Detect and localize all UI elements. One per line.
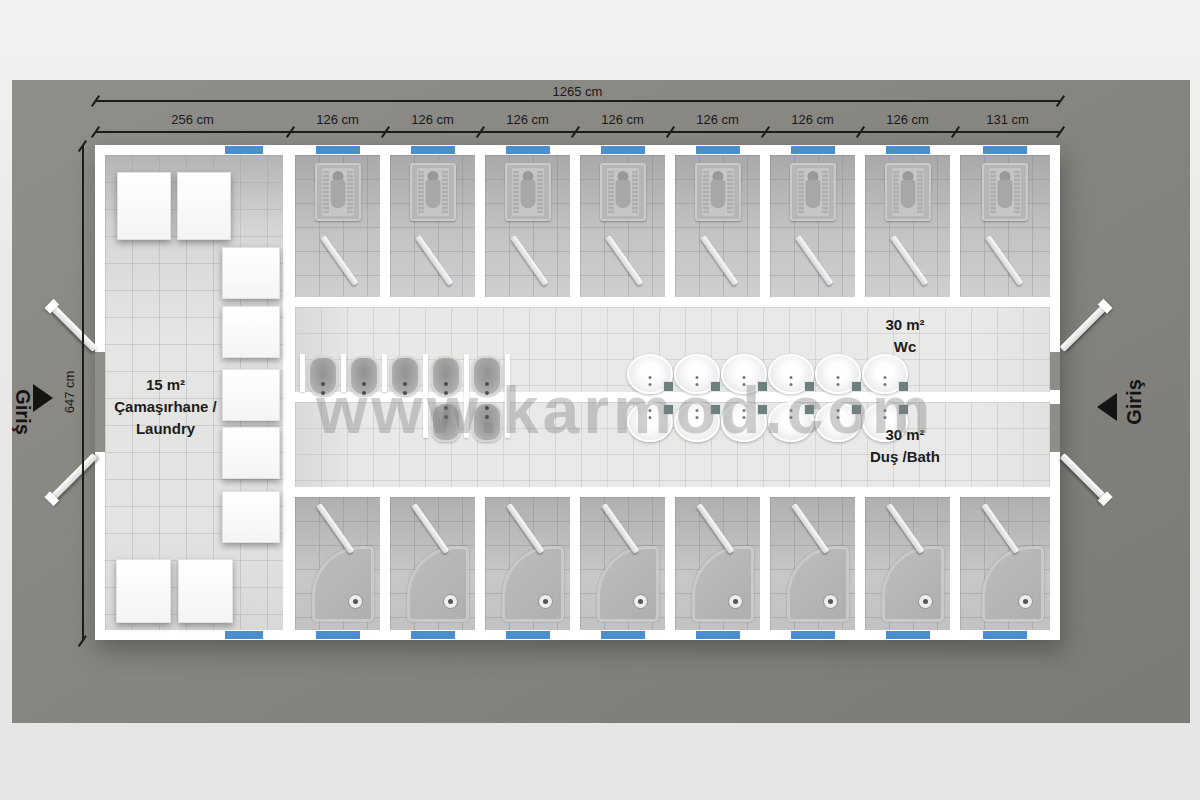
- shower-drain: [348, 594, 363, 609]
- dimension-segment-label: 126 cm: [303, 112, 373, 127]
- shower-drain: [1018, 594, 1033, 609]
- window: [791, 631, 835, 639]
- stall-door: [316, 503, 354, 554]
- shower-stall: [580, 497, 665, 630]
- shower-stall: [390, 497, 475, 630]
- window: [601, 146, 645, 154]
- toilet-stall: [770, 155, 855, 297]
- toilet-ridge: [1014, 171, 1020, 213]
- dimension-segment-label: 126 cm: [398, 112, 468, 127]
- dimension-segment-label: 126 cm: [493, 112, 563, 127]
- squat-toilet: [315, 163, 361, 221]
- shower-stall: [865, 497, 950, 630]
- wc-room-label: 30 m² Wc: [845, 314, 965, 358]
- entrance-door-leaf: [49, 303, 98, 352]
- toilet-stall: [485, 155, 570, 297]
- window: [506, 146, 550, 154]
- door-opening-right: [1050, 352, 1060, 390]
- shower-drain: [633, 594, 648, 609]
- washing-machine: [222, 306, 280, 358]
- toilet-ridge: [347, 171, 353, 213]
- window: [696, 631, 740, 639]
- shower-tray: [692, 546, 754, 622]
- toilet-slot: [330, 180, 345, 208]
- stall-door: [415, 235, 453, 286]
- shower-tray: [787, 546, 849, 622]
- entrance-door-leaf: [49, 453, 98, 502]
- washing-machine: [222, 247, 280, 299]
- shower-drain: [823, 594, 838, 609]
- stall-door: [890, 235, 928, 286]
- window: [411, 146, 455, 154]
- floor-plan-scene: 256 cm126 cm126 cm126 cm126 cm126 cm126 …: [0, 0, 1200, 800]
- stall-door: [510, 235, 548, 286]
- shower-stall: [295, 497, 380, 630]
- window: [316, 146, 360, 154]
- window: [886, 631, 930, 639]
- door-opening-right: [1050, 404, 1060, 452]
- stall-door: [411, 503, 449, 554]
- shower-tray: [312, 546, 374, 622]
- entrance-arrow-left-icon: [33, 384, 53, 412]
- entrance-door-leaf: [1060, 453, 1109, 502]
- laundry-name-tr: Çamaşırhane /: [98, 396, 233, 418]
- dimension-line-height: [82, 145, 84, 640]
- toilet-stall: [390, 155, 475, 297]
- window: [696, 146, 740, 154]
- shower-stall: [485, 497, 570, 630]
- toilet-ridge: [442, 171, 448, 213]
- shower-stall: [770, 497, 855, 630]
- toilet-ridge: [727, 171, 733, 213]
- entrance-label-right: Giriş: [1123, 379, 1146, 425]
- shower-drain: [728, 594, 743, 609]
- entrance-door-leaf: [1060, 303, 1109, 352]
- shower-tray: [982, 546, 1044, 622]
- toilet-ridge: [990, 171, 996, 213]
- dimension-line-segments: [95, 131, 1060, 133]
- toilet-stall: [295, 155, 380, 297]
- toilet-ridge: [893, 171, 899, 213]
- toilet-ridge: [703, 171, 709, 213]
- toilet-slot: [900, 180, 915, 208]
- stall-door: [985, 235, 1023, 286]
- window: [601, 631, 645, 639]
- toilet-ridge: [917, 171, 923, 213]
- stall-door: [700, 235, 738, 286]
- toilet-slot: [615, 180, 630, 208]
- laundry-room-label: 15 m² Çamaşırhane / Laundry: [98, 374, 233, 440]
- window: [983, 631, 1027, 639]
- shower-stall: [960, 497, 1050, 630]
- toilet-ridge: [323, 171, 329, 213]
- window: [316, 631, 360, 639]
- window: [791, 146, 835, 154]
- shower-tray: [597, 546, 659, 622]
- window: [506, 631, 550, 639]
- dimension-segment-label: 126 cm: [778, 112, 848, 127]
- laundry-name-en: Laundry: [98, 418, 233, 440]
- stall-door: [886, 503, 924, 554]
- toilet-stall: [580, 155, 665, 297]
- washing-machine: [222, 491, 280, 543]
- stall-door: [795, 235, 833, 286]
- toilet-ridge: [513, 171, 519, 213]
- entrance-arrow-right-icon: [1097, 393, 1117, 421]
- toilet-slot: [805, 180, 820, 208]
- toilet-stall: [865, 155, 950, 297]
- dimension-total-label: 1265 cm: [530, 84, 625, 99]
- squat-toilet: [790, 163, 836, 221]
- laundry-area: 15 m²: [98, 374, 233, 396]
- stall-door: [605, 235, 643, 286]
- stall-door: [696, 503, 734, 554]
- toilet-ridge: [608, 171, 614, 213]
- washing-machine: [117, 172, 171, 240]
- washing-machine: [177, 172, 231, 240]
- toilet-slot: [998, 180, 1013, 208]
- window: [886, 146, 930, 154]
- window: [225, 631, 263, 639]
- dimension-height-label: 647 cm: [62, 371, 77, 414]
- stall-door: [791, 503, 829, 554]
- toilet-slot: [710, 180, 725, 208]
- bath-name: Duş /Bath: [845, 446, 965, 468]
- entrance-label-left: Giriş: [11, 389, 34, 435]
- stall-door: [320, 235, 358, 286]
- shower-drain: [538, 594, 553, 609]
- washing-machine: [178, 559, 233, 623]
- wc-area: 30 m²: [845, 314, 965, 336]
- dimension-segment-label: 126 cm: [683, 112, 753, 127]
- squat-toilet: [600, 163, 646, 221]
- squat-toilet: [505, 163, 551, 221]
- stall-door: [506, 503, 544, 554]
- shower-drain: [918, 594, 933, 609]
- toilet-slot: [425, 180, 440, 208]
- urinal-partition-wall: [300, 354, 305, 392]
- dimension-segment-label: 256 cm: [158, 112, 228, 127]
- dimension-segment-label: 131 cm: [973, 112, 1043, 127]
- window: [983, 146, 1027, 154]
- window: [411, 631, 455, 639]
- dimension-segment-label: 126 cm: [873, 112, 943, 127]
- squat-toilet: [695, 163, 741, 221]
- wc-name: Wc: [845, 336, 965, 358]
- toilet-stall: [960, 155, 1050, 297]
- stall-door: [601, 503, 639, 554]
- toilet-ridge: [822, 171, 828, 213]
- dimension-segment-label: 126 cm: [588, 112, 658, 127]
- squat-toilet: [982, 163, 1028, 221]
- toilet-ridge: [632, 171, 638, 213]
- shower-tray: [407, 546, 469, 622]
- dimension-line-total: [95, 100, 1060, 102]
- shower-tray: [502, 546, 564, 622]
- watermark-text: www.karmod.com: [316, 372, 934, 448]
- shower-tray: [882, 546, 944, 622]
- toilet-ridge: [798, 171, 804, 213]
- squat-toilet: [885, 163, 931, 221]
- toilet-slot: [520, 180, 535, 208]
- shower-stall: [675, 497, 760, 630]
- squat-toilet: [410, 163, 456, 221]
- washing-machine: [116, 559, 171, 623]
- toilet-ridge: [537, 171, 543, 213]
- stall-door: [981, 503, 1019, 554]
- toilet-stall: [675, 155, 760, 297]
- shower-drain: [443, 594, 458, 609]
- toilet-ridge: [418, 171, 424, 213]
- window: [225, 146, 263, 154]
